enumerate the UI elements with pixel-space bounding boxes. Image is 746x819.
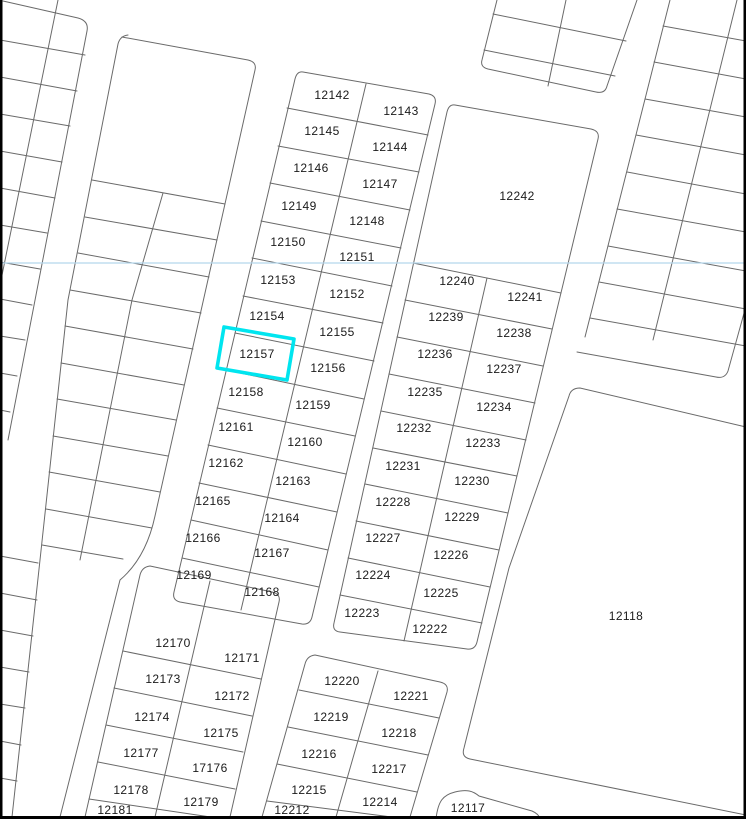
parcel-label[interactable]: 12236 (417, 347, 452, 361)
parcel-label[interactable]: 12175 (203, 726, 238, 740)
parcel-label[interactable]: 12179 (183, 795, 218, 809)
parcel-label[interactable]: 12118 (609, 609, 643, 623)
lot-line (0, 630, 33, 636)
parcel-label[interactable]: 12237 (486, 362, 521, 376)
parcel-label[interactable]: 12170 (155, 636, 190, 650)
parcel-label[interactable]: 12169 (176, 568, 211, 582)
parcel-label[interactable]: 12164 (264, 511, 299, 525)
parcel-label[interactable]: 12145 (304, 124, 339, 138)
parcel-label[interactable]: 12225 (423, 586, 458, 600)
parcel-label[interactable]: 12178 (113, 783, 148, 797)
parcel-label[interactable]: 12147 (362, 177, 397, 191)
cadastral-map[interactable]: 1214212145121461214912150121531215412157… (0, 0, 746, 819)
parcel-label[interactable]: 12219 (313, 710, 348, 724)
parcel-label[interactable]: 12228 (375, 495, 410, 509)
block-boundary (548, 0, 566, 86)
parcel-label[interactable]: 12163 (275, 474, 310, 488)
parcel-label[interactable]: 12231 (385, 459, 420, 473)
lot-line (0, 336, 25, 340)
lot-line (663, 26, 746, 41)
lot-line (413, 263, 561, 293)
map-canvas[interactable]: 1214212145121461214912150121531215412157… (0, 0, 746, 819)
parcel-label[interactable]: 12168 (244, 585, 279, 599)
parcel-label[interactable]: 12221 (393, 689, 428, 703)
lot-line (636, 135, 746, 155)
parcel-label[interactable]: 12146 (293, 161, 328, 175)
parcel-label[interactable]: 12172 (214, 689, 249, 703)
parcel-label[interactable]: 12223 (344, 606, 379, 620)
block-boundary (463, 388, 746, 815)
block-boundary (585, 0, 670, 337)
parcel-label[interactable]: 12154 (249, 309, 284, 323)
parcel-label[interactable]: 12150 (270, 235, 305, 249)
parcel-label-highlighted[interactable]: 12157 (239, 347, 274, 361)
parcel-label[interactable]: 12159 (295, 398, 330, 412)
parcel-label[interactable]: 12234 (476, 400, 511, 414)
parcel-lines (0, 0, 746, 819)
map-border-left (0, 0, 3, 819)
parcel-label[interactable]: 17176 (192, 761, 227, 775)
parcel-label[interactable]: 12239 (428, 310, 463, 324)
parcel-label[interactable]: 12142 (314, 88, 349, 102)
parcel-label[interactable]: 12158 (228, 385, 263, 399)
lot-line (0, 225, 47, 233)
parcel-label[interactable]: 12212 (274, 803, 309, 817)
lot-line (608, 246, 746, 271)
parcel-label[interactable]: 12156 (310, 361, 345, 375)
parcel-label[interactable]: 12174 (134, 710, 169, 724)
lot-line (0, 704, 25, 708)
parcel-label[interactable]: 12220 (324, 674, 359, 688)
parcel-label[interactable]: 12161 (218, 420, 253, 434)
parcel-label[interactable]: 12167 (254, 546, 289, 560)
parcel-label[interactable]: 12165 (195, 494, 230, 508)
parcel-label[interactable]: 12181 (97, 803, 132, 817)
lot-line (0, 778, 17, 781)
lot-line (61, 363, 184, 385)
parcel-label[interactable]: 12242 (499, 189, 534, 203)
block-boundary (12, 35, 128, 817)
lot-line (0, 593, 37, 600)
lot-line (85, 217, 217, 240)
lot-line (405, 300, 552, 329)
block-boundary (80, 193, 163, 560)
parcel-label[interactable]: 12230 (454, 474, 489, 488)
parcel-label[interactable]: 12144 (372, 140, 407, 154)
lot-line (0, 40, 85, 55)
block-boundary (0, 0, 58, 285)
block-boundary (3, 1, 87, 440)
lot-line (627, 172, 746, 194)
lot-line (590, 318, 746, 346)
lot-line (0, 556, 38, 563)
parcel-label[interactable]: 12240 (439, 274, 474, 288)
parcel-label[interactable]: 12152 (329, 287, 364, 301)
parcel-label[interactable]: 12166 (185, 531, 220, 545)
lot-line (617, 209, 746, 232)
parcel-label[interactable]: 12215 (291, 783, 326, 797)
lot-line (65, 326, 193, 349)
block-boundary (653, 0, 737, 340)
lot-line (493, 14, 626, 41)
parcel-label[interactable]: 12177 (123, 746, 158, 760)
lot-line (0, 373, 17, 376)
parcel-label[interactable]: 12238 (496, 326, 531, 340)
lot-line (0, 667, 29, 672)
lot-line (78, 253, 209, 277)
parcel-label[interactable]: 12151 (339, 250, 374, 264)
parcel-label[interactable]: 12232 (396, 421, 431, 435)
lot-line (57, 399, 176, 420)
lot-line (654, 62, 746, 79)
parcel-label[interactable]: 12233 (465, 436, 500, 450)
parcel-label[interactable]: 12241 (507, 290, 542, 304)
parcel-label[interactable]: 12143 (383, 104, 418, 118)
lot-line (46, 509, 152, 528)
parcel-label[interactable]: 12224 (355, 568, 390, 582)
parcel-label[interactable]: 12235 (407, 385, 442, 399)
lot-line (0, 114, 70, 126)
parcel-labels: 1214212145121461214912150121531215412157… (97, 88, 643, 817)
parcel-label[interactable]: 12216 (301, 747, 336, 761)
parcel-label[interactable]: 12160 (287, 435, 322, 449)
lot-line (599, 282, 746, 309)
parcel-label[interactable]: 12171 (224, 651, 259, 665)
parcel-label[interactable]: 12173 (145, 672, 180, 686)
parcel-label[interactable]: 12214 (362, 795, 397, 809)
parcel-label[interactable]: 12117 (451, 801, 485, 815)
parcel-label[interactable]: 12149 (281, 199, 316, 213)
lot-line (70, 290, 201, 313)
lot-line (49, 472, 160, 492)
parcel-label[interactable]: 12162 (208, 456, 243, 470)
parcel-label[interactable]: 12222 (412, 622, 447, 636)
parcel-label[interactable]: 12153 (260, 273, 295, 287)
parcel-label[interactable]: 12227 (365, 531, 400, 545)
block-boundary (482, 0, 637, 92)
parcel-label[interactable]: 12217 (371, 762, 406, 776)
lot-line (0, 741, 21, 745)
lot-line (0, 77, 77, 91)
parcel-label[interactable]: 12226 (433, 548, 468, 562)
lot-line (0, 299, 32, 305)
lot-line (53, 436, 168, 456)
parcel-label[interactable]: 12155 (319, 325, 354, 339)
parcel-label[interactable]: 12229 (444, 510, 479, 524)
block-boundary (155, 581, 210, 817)
parcel-label[interactable]: 12218 (381, 726, 416, 740)
parcel-label[interactable]: 12148 (349, 214, 384, 228)
lot-line (0, 188, 55, 198)
lot-line (645, 99, 746, 117)
lot-line (92, 180, 225, 204)
lot-line (0, 151, 62, 162)
